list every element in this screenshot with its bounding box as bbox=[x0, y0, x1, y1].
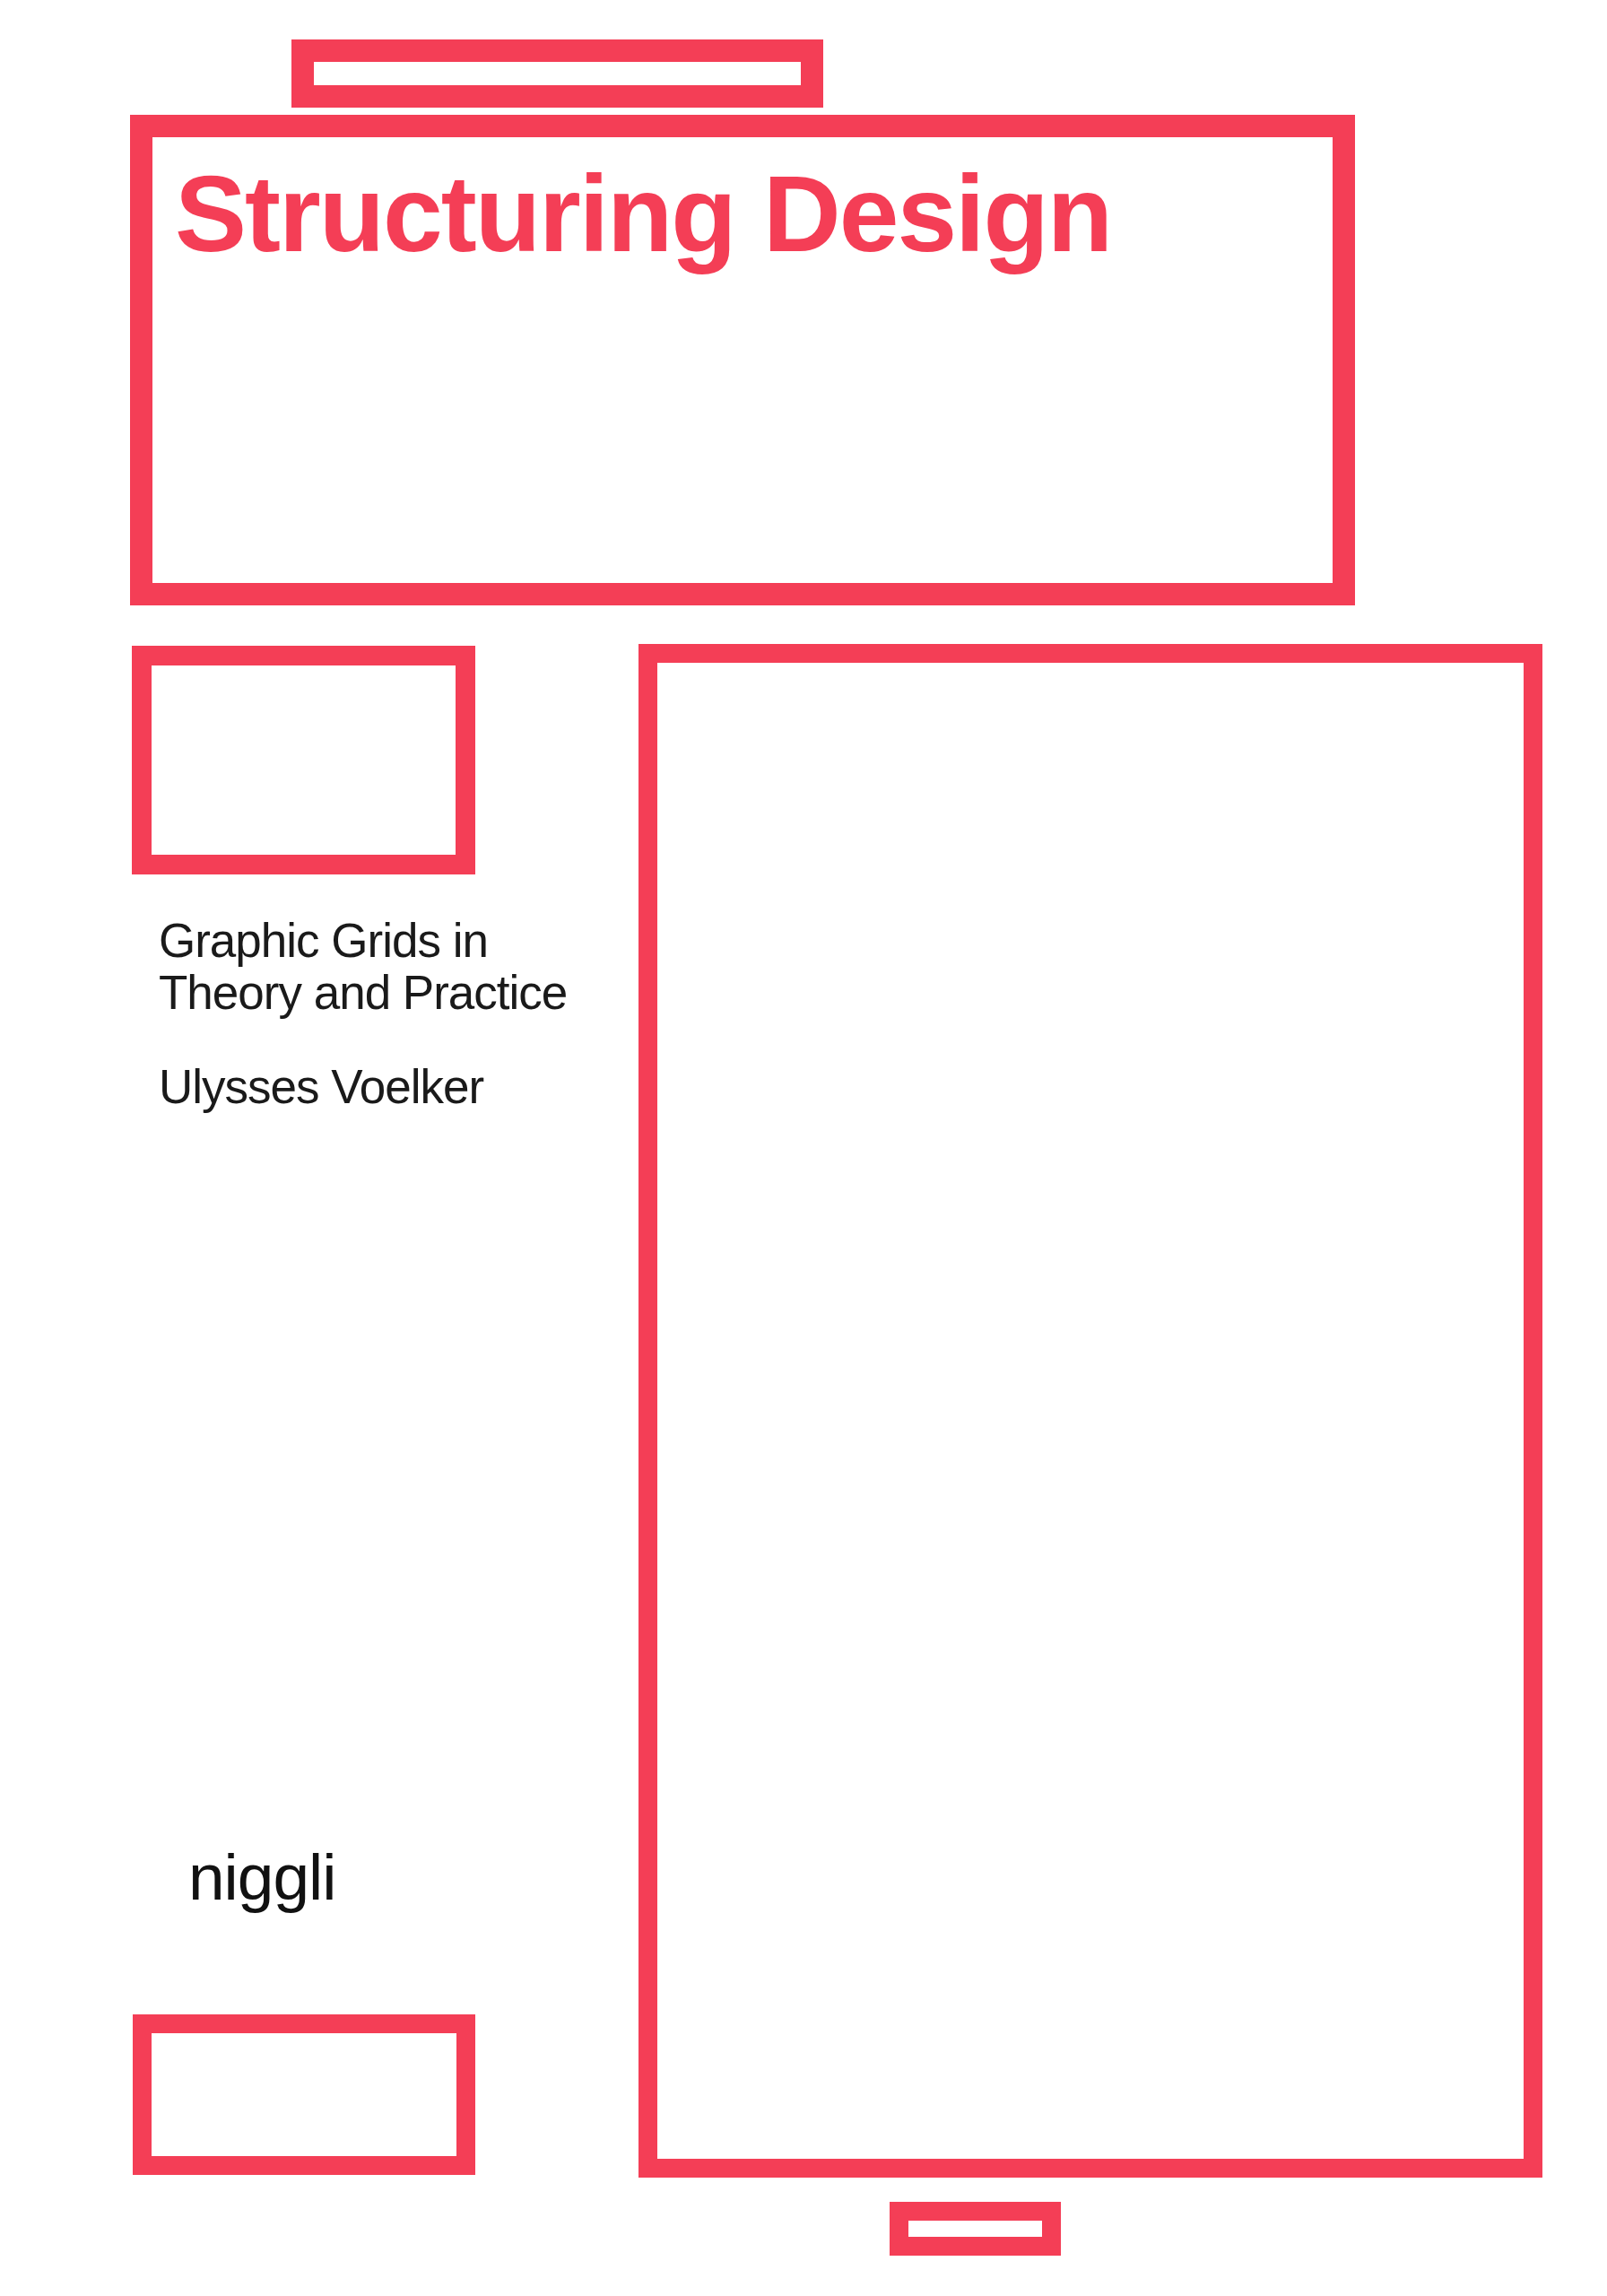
book-title: Structuring Design bbox=[175, 159, 1111, 268]
decorative-frame-tall bbox=[638, 644, 1542, 2178]
book-subtitle: Graphic Grids in Theory and Practice bbox=[159, 915, 567, 1019]
publisher-logo: niggli bbox=[188, 1841, 335, 1913]
decorative-frame-bottom-left bbox=[133, 2014, 475, 2175]
subtitle-line-1: Graphic Grids in bbox=[159, 914, 488, 967]
title-frame: Structuring Design bbox=[130, 115, 1355, 605]
decorative-slot-frame-top bbox=[291, 39, 823, 108]
decorative-frame-small bbox=[132, 646, 475, 874]
book-cover: Structuring Design Graphic Grids in Theo… bbox=[0, 0, 1607, 2296]
decorative-slot-frame-bottom bbox=[890, 2202, 1061, 2256]
subtitle-line-2: Theory and Practice bbox=[159, 966, 567, 1019]
book-author: Ulysses Voelker bbox=[159, 1061, 483, 1113]
